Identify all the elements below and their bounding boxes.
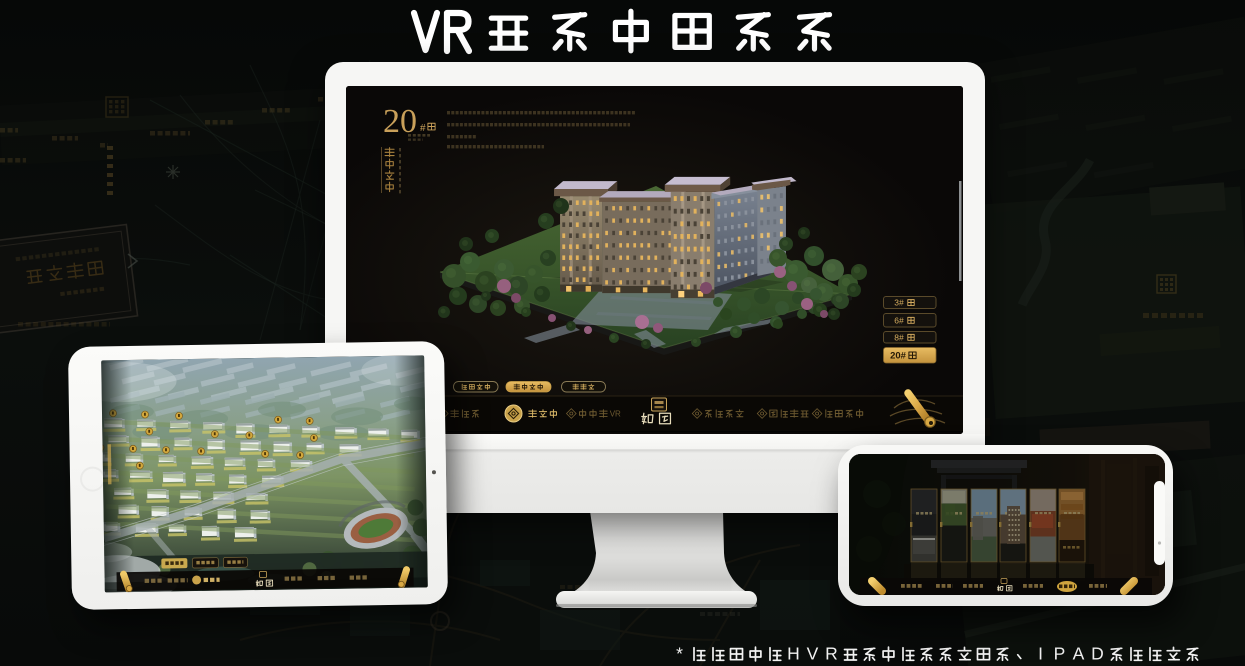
svg-text:3#: 3# — [894, 298, 904, 308]
svg-text:A: A — [1073, 644, 1085, 664]
svg-text:8#: 8# — [894, 332, 904, 342]
svg-text:R: R — [825, 644, 838, 664]
svg-text:20: 20 — [383, 103, 417, 140]
svg-text:D: D — [1091, 644, 1104, 664]
svg-text:#: # — [420, 123, 426, 134]
svg-text:H: H — [787, 644, 800, 664]
svg-text:*: * — [676, 644, 683, 664]
svg-text:P: P — [1054, 644, 1066, 664]
svg-text:6#: 6# — [894, 315, 904, 325]
svg-text:I: I — [1038, 644, 1043, 664]
svg-text:VR: VR — [610, 410, 621, 419]
svg-text:V: V — [807, 644, 819, 664]
svg-text:20#: 20# — [890, 351, 907, 362]
